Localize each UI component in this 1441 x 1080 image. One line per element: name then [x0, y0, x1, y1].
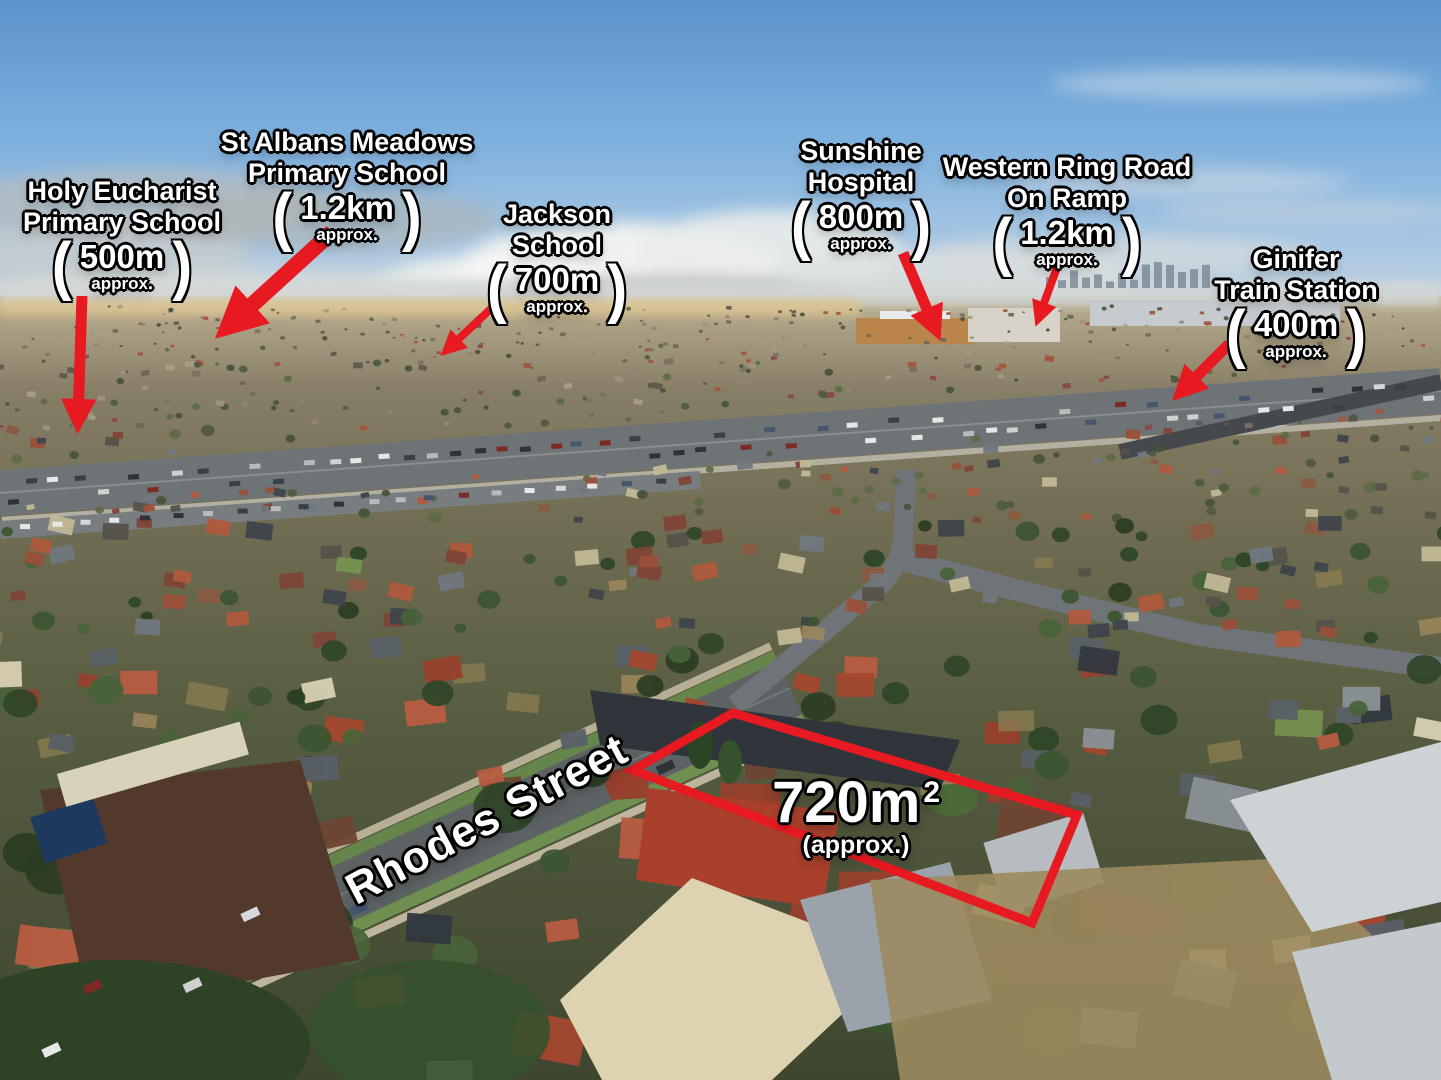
arrow-holy-eucharist [78, 296, 82, 420]
scene-photo [0, 0, 1441, 1080]
aerial-photo: Holy Eucharist Primary School ( 500m app… [0, 0, 1441, 1080]
